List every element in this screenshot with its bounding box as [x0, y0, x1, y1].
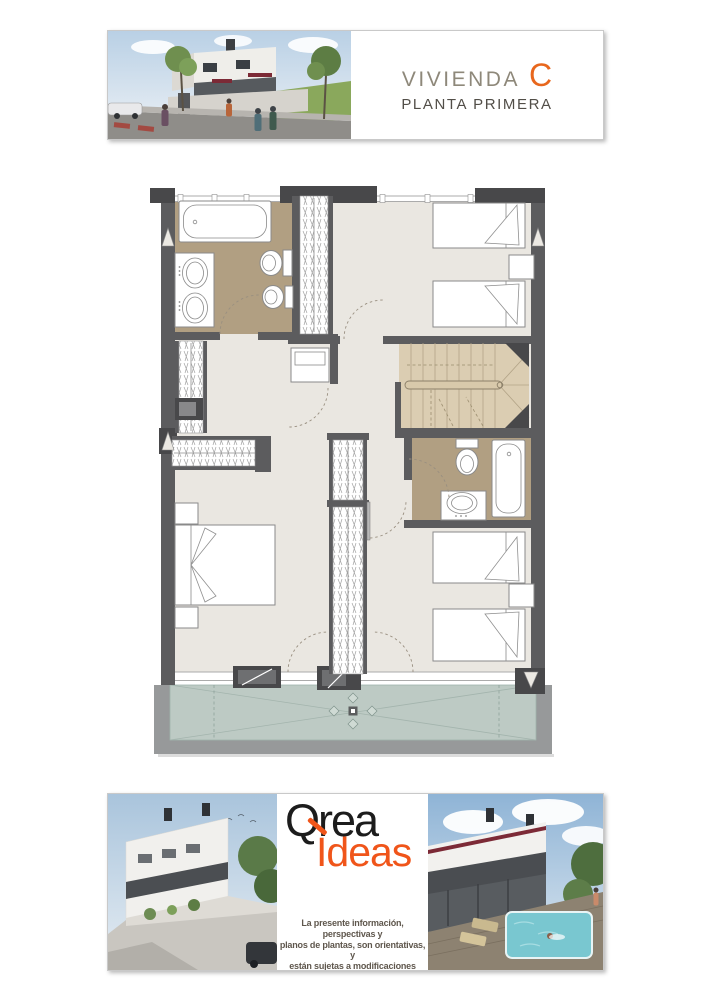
floor-plan: [148, 182, 558, 760]
bidet-symbol: [285, 286, 293, 308]
header-title-block: VIVIENDA C PLANTA PRIMERA: [351, 31, 603, 139]
handrail: [405, 381, 502, 389]
hall-cabinet: [291, 348, 329, 382]
disclaimer-line: La presente información, perspectivas y: [279, 918, 426, 940]
brochure-page: VIVIENDA C PLANTA PRIMERA: [0, 0, 707, 1000]
floor-subtitle: PLANTA PRIMERA: [401, 96, 552, 113]
disclaimer-line: planos de plantas, son orientativas, y: [279, 940, 426, 962]
nightstand-symbol: [175, 607, 198, 628]
bathtub-symbol: [492, 440, 525, 517]
title-vivienda: VIVIENDA: [402, 68, 520, 92]
footer-card: Qrea Ideas La presente información, pers…: [107, 793, 604, 971]
terrace: [154, 685, 554, 757]
nightstand-symbol: [175, 503, 198, 524]
person-figure: [594, 888, 599, 906]
wardrobe-top: [300, 196, 328, 334]
vanity-symbol: [175, 253, 214, 327]
toilet-symbol: [456, 439, 478, 448]
page-title: VIVIENDA C: [402, 57, 552, 94]
disclaimer-line: están sujetas a modificaciones derivadas: [279, 961, 426, 970]
exterior-render-photo-right: [428, 794, 603, 970]
wardrobe-spine: [329, 440, 370, 674]
header-card: VIVIENDA C PLANTA PRIMERA: [107, 30, 604, 140]
legal-disclaimer: La presente información, perspectivas y …: [279, 918, 426, 970]
door-leaf: [367, 502, 370, 540]
toilet-symbol: [283, 250, 292, 276]
building-render-photo: [108, 31, 351, 139]
nightstand-symbol: [509, 584, 534, 607]
nightstand-symbol: [509, 255, 534, 279]
brand-name-top: Qrea: [285, 798, 411, 843]
footer-brand-block: Qrea Ideas La presente información, pers…: [277, 794, 428, 970]
bathtub-symbol: [179, 201, 271, 242]
floor-plan-drawing: [148, 182, 558, 760]
exterior-render-photo-left: [108, 794, 277, 970]
double-bed-symbol: [175, 525, 275, 605]
brand-logo: Qrea Ideas: [285, 798, 411, 873]
unit-letter: C: [529, 57, 552, 94]
